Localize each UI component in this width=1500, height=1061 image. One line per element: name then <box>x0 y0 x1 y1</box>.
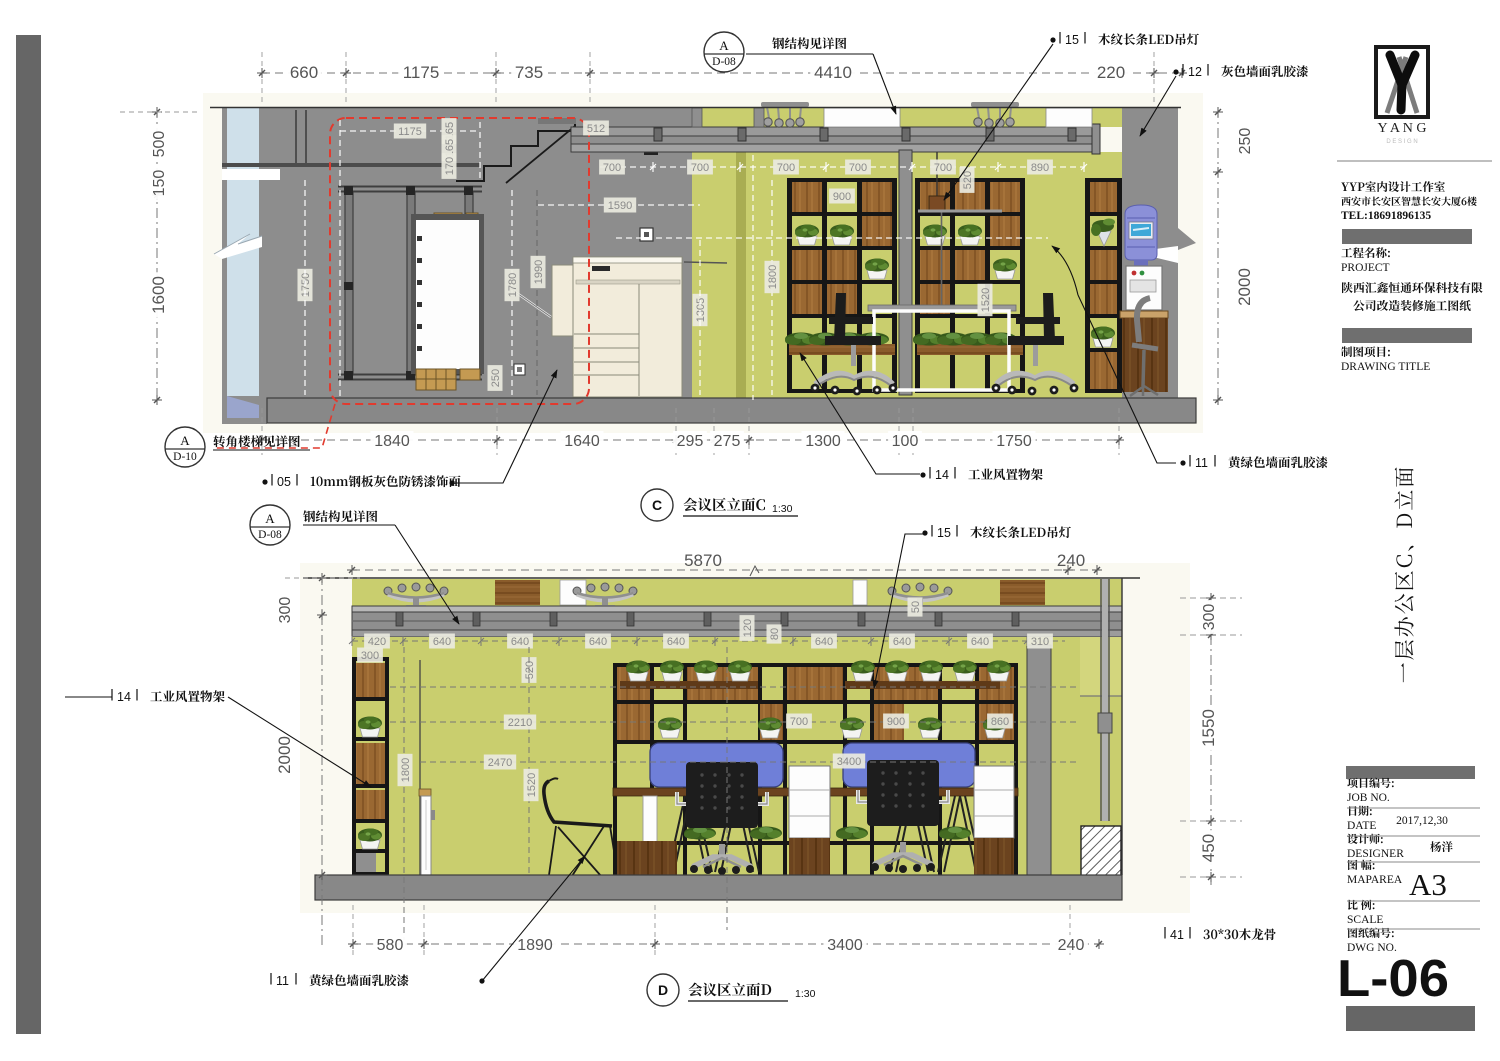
svg-text:150: 150 <box>151 170 168 197</box>
svg-text:50: 50 <box>910 601 922 613</box>
svg-text:DATE: DATE <box>1347 820 1376 832</box>
svg-text:640: 640 <box>589 636 607 648</box>
svg-text:1300: 1300 <box>805 433 841 450</box>
svg-text:700: 700 <box>603 162 621 174</box>
svg-text:2000: 2000 <box>275 736 294 774</box>
svg-text:11: 11 <box>276 974 289 988</box>
svg-text:D-08: D-08 <box>712 56 736 68</box>
svg-text:DRAWING TITLE: DRAWING TITLE <box>1341 361 1430 373</box>
svg-text:295: 295 <box>677 433 704 450</box>
svg-text:14: 14 <box>935 468 949 482</box>
svg-text:1305: 1305 <box>695 298 707 322</box>
svg-text:A3: A3 <box>1409 867 1447 902</box>
svg-text:1750: 1750 <box>300 273 312 297</box>
svg-text:1175: 1175 <box>398 126 422 138</box>
svg-text:15: 15 <box>1065 33 1079 47</box>
svg-text:3400: 3400 <box>827 937 863 954</box>
svg-text:700: 700 <box>691 162 709 174</box>
svg-text:700: 700 <box>790 716 808 728</box>
svg-text:12: 12 <box>1188 65 1202 79</box>
svg-text:640: 640 <box>815 636 833 648</box>
svg-text:660: 660 <box>290 63 318 82</box>
svg-text:1550: 1550 <box>1199 709 1218 747</box>
svg-text:A: A <box>180 433 190 448</box>
svg-text:500: 500 <box>151 131 168 158</box>
svg-text:300: 300 <box>361 650 379 662</box>
svg-text:860: 860 <box>991 716 1009 728</box>
svg-text:700: 700 <box>849 162 867 174</box>
svg-text:JOB NO.: JOB NO. <box>1347 792 1390 804</box>
svg-text:250: 250 <box>1237 128 1254 155</box>
svg-text:MAPAREA: MAPAREA <box>1347 874 1403 886</box>
svg-text:L-06: L-06 <box>1337 950 1449 1008</box>
svg-text:640: 640 <box>667 636 685 648</box>
svg-text:120: 120 <box>742 619 754 637</box>
svg-text:890: 890 <box>1031 162 1049 174</box>
svg-text:41: 41 <box>1170 928 1184 942</box>
svg-text:240: 240 <box>1057 551 1085 570</box>
svg-text:640: 640 <box>511 636 529 648</box>
svg-text:220: 220 <box>1097 63 1125 82</box>
svg-text:1780: 1780 <box>507 273 519 297</box>
svg-text:100: 100 <box>892 433 919 450</box>
svg-text:300: 300 <box>277 597 294 624</box>
svg-text:D E S I G N: D E S I G N <box>1386 139 1417 145</box>
svg-text:900: 900 <box>833 191 851 203</box>
svg-text:D-08: D-08 <box>258 529 282 541</box>
svg-text:735: 735 <box>515 63 543 82</box>
svg-text:1:30: 1:30 <box>772 503 793 515</box>
svg-text:900: 900 <box>887 716 905 728</box>
svg-text:580: 580 <box>377 937 404 954</box>
svg-text:640: 640 <box>971 636 989 648</box>
svg-text:640: 640 <box>433 636 451 648</box>
svg-text:15: 15 <box>937 526 951 540</box>
svg-text:2000: 2000 <box>1235 268 1254 306</box>
svg-text:14: 14 <box>117 690 131 704</box>
svg-text:2017,12,30: 2017,12,30 <box>1396 815 1448 827</box>
svg-text:1990: 1990 <box>533 260 545 284</box>
svg-text:4410: 4410 <box>814 63 852 82</box>
svg-text:1590: 1590 <box>608 200 632 212</box>
svg-text:1840: 1840 <box>374 433 410 450</box>
svg-text:170: 170 <box>444 157 456 175</box>
svg-text:1800: 1800 <box>767 265 779 289</box>
svg-text:1520: 1520 <box>526 773 538 797</box>
svg-text:80: 80 <box>769 628 781 640</box>
svg-text:240: 240 <box>1058 937 1085 954</box>
svg-text:250: 250 <box>490 369 502 387</box>
svg-text:520: 520 <box>524 661 536 679</box>
svg-text:1890: 1890 <box>517 937 553 954</box>
svg-text:1750: 1750 <box>996 433 1032 450</box>
svg-text:D-10: D-10 <box>173 451 197 463</box>
svg-text:1175: 1175 <box>403 63 440 82</box>
svg-text:5870: 5870 <box>684 551 722 570</box>
svg-text:700: 700 <box>777 162 795 174</box>
svg-text:512: 512 <box>587 123 605 135</box>
svg-text:2470: 2470 <box>488 757 512 769</box>
svg-text:DESIGNER: DESIGNER <box>1347 848 1404 860</box>
svg-text:300: 300 <box>1201 604 1218 631</box>
svg-text:TEL:18691896135: TEL:18691896135 <box>1341 210 1431 222</box>
svg-text:A: A <box>719 38 729 53</box>
svg-text:640: 640 <box>893 636 911 648</box>
svg-text:420: 420 <box>368 636 386 648</box>
svg-text:275: 275 <box>714 433 741 450</box>
svg-text:700: 700 <box>934 162 952 174</box>
svg-text:Y A N G: Y A N G <box>1378 121 1427 136</box>
svg-text:A: A <box>265 511 275 526</box>
svg-text:05: 05 <box>277 475 291 489</box>
svg-text:2210: 2210 <box>508 717 532 729</box>
svg-text:3400: 3400 <box>837 756 861 768</box>
svg-text:1800: 1800 <box>400 758 412 782</box>
svg-text:520: 520 <box>962 171 974 189</box>
svg-text:D: D <box>658 982 668 998</box>
svg-text:C: C <box>652 497 662 513</box>
svg-text:1520: 1520 <box>980 288 992 312</box>
svg-text:11: 11 <box>1195 456 1208 470</box>
svg-text:SCALE: SCALE <box>1347 914 1383 926</box>
svg-text:1:30: 1:30 <box>795 988 816 1000</box>
svg-text:1640: 1640 <box>564 433 600 450</box>
svg-text:310: 310 <box>1031 636 1049 648</box>
svg-text:PROJECT: PROJECT <box>1341 262 1390 274</box>
svg-text:450: 450 <box>1199 834 1218 862</box>
svg-text:1600: 1600 <box>149 276 168 314</box>
